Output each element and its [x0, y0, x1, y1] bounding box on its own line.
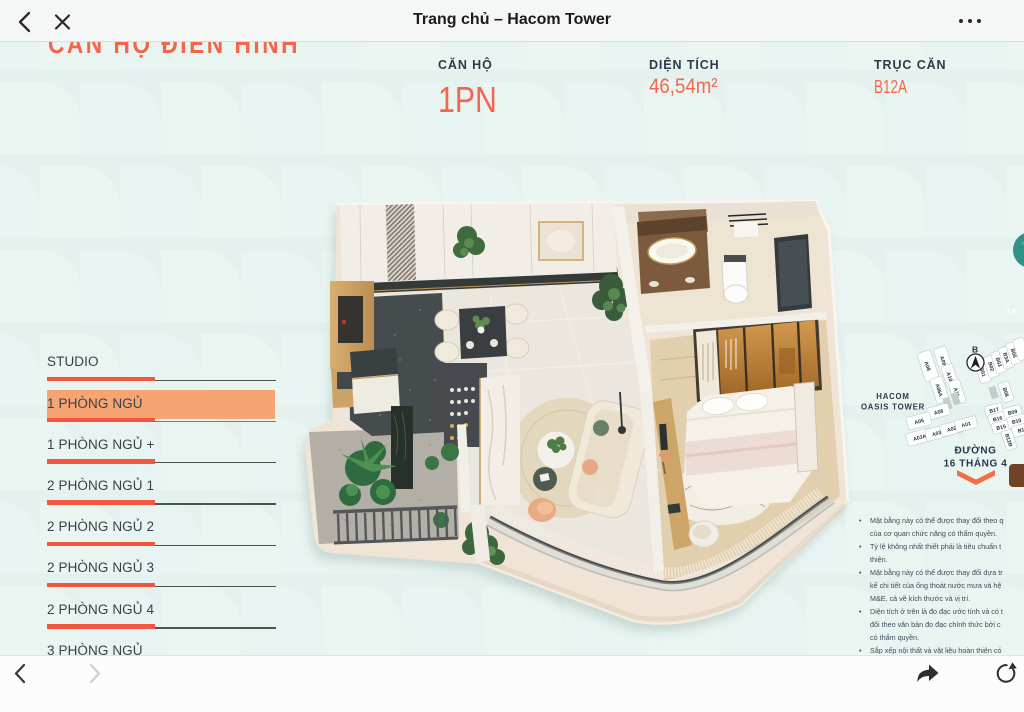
svg-text:16 THÁNG 4: 16 THÁNG 4 [944, 457, 1008, 470]
svg-text:ĐƯỜNG: ĐƯỜNG [954, 444, 996, 457]
svg-text:HACOM: HACOM [876, 392, 909, 401]
svg-text:B: B [972, 345, 978, 355]
svg-text:TR: TR [1006, 307, 1018, 316]
svg-text:B1: B1 [1017, 427, 1024, 435]
svg-text:OASIS TOWER: OASIS TOWER [861, 403, 925, 412]
